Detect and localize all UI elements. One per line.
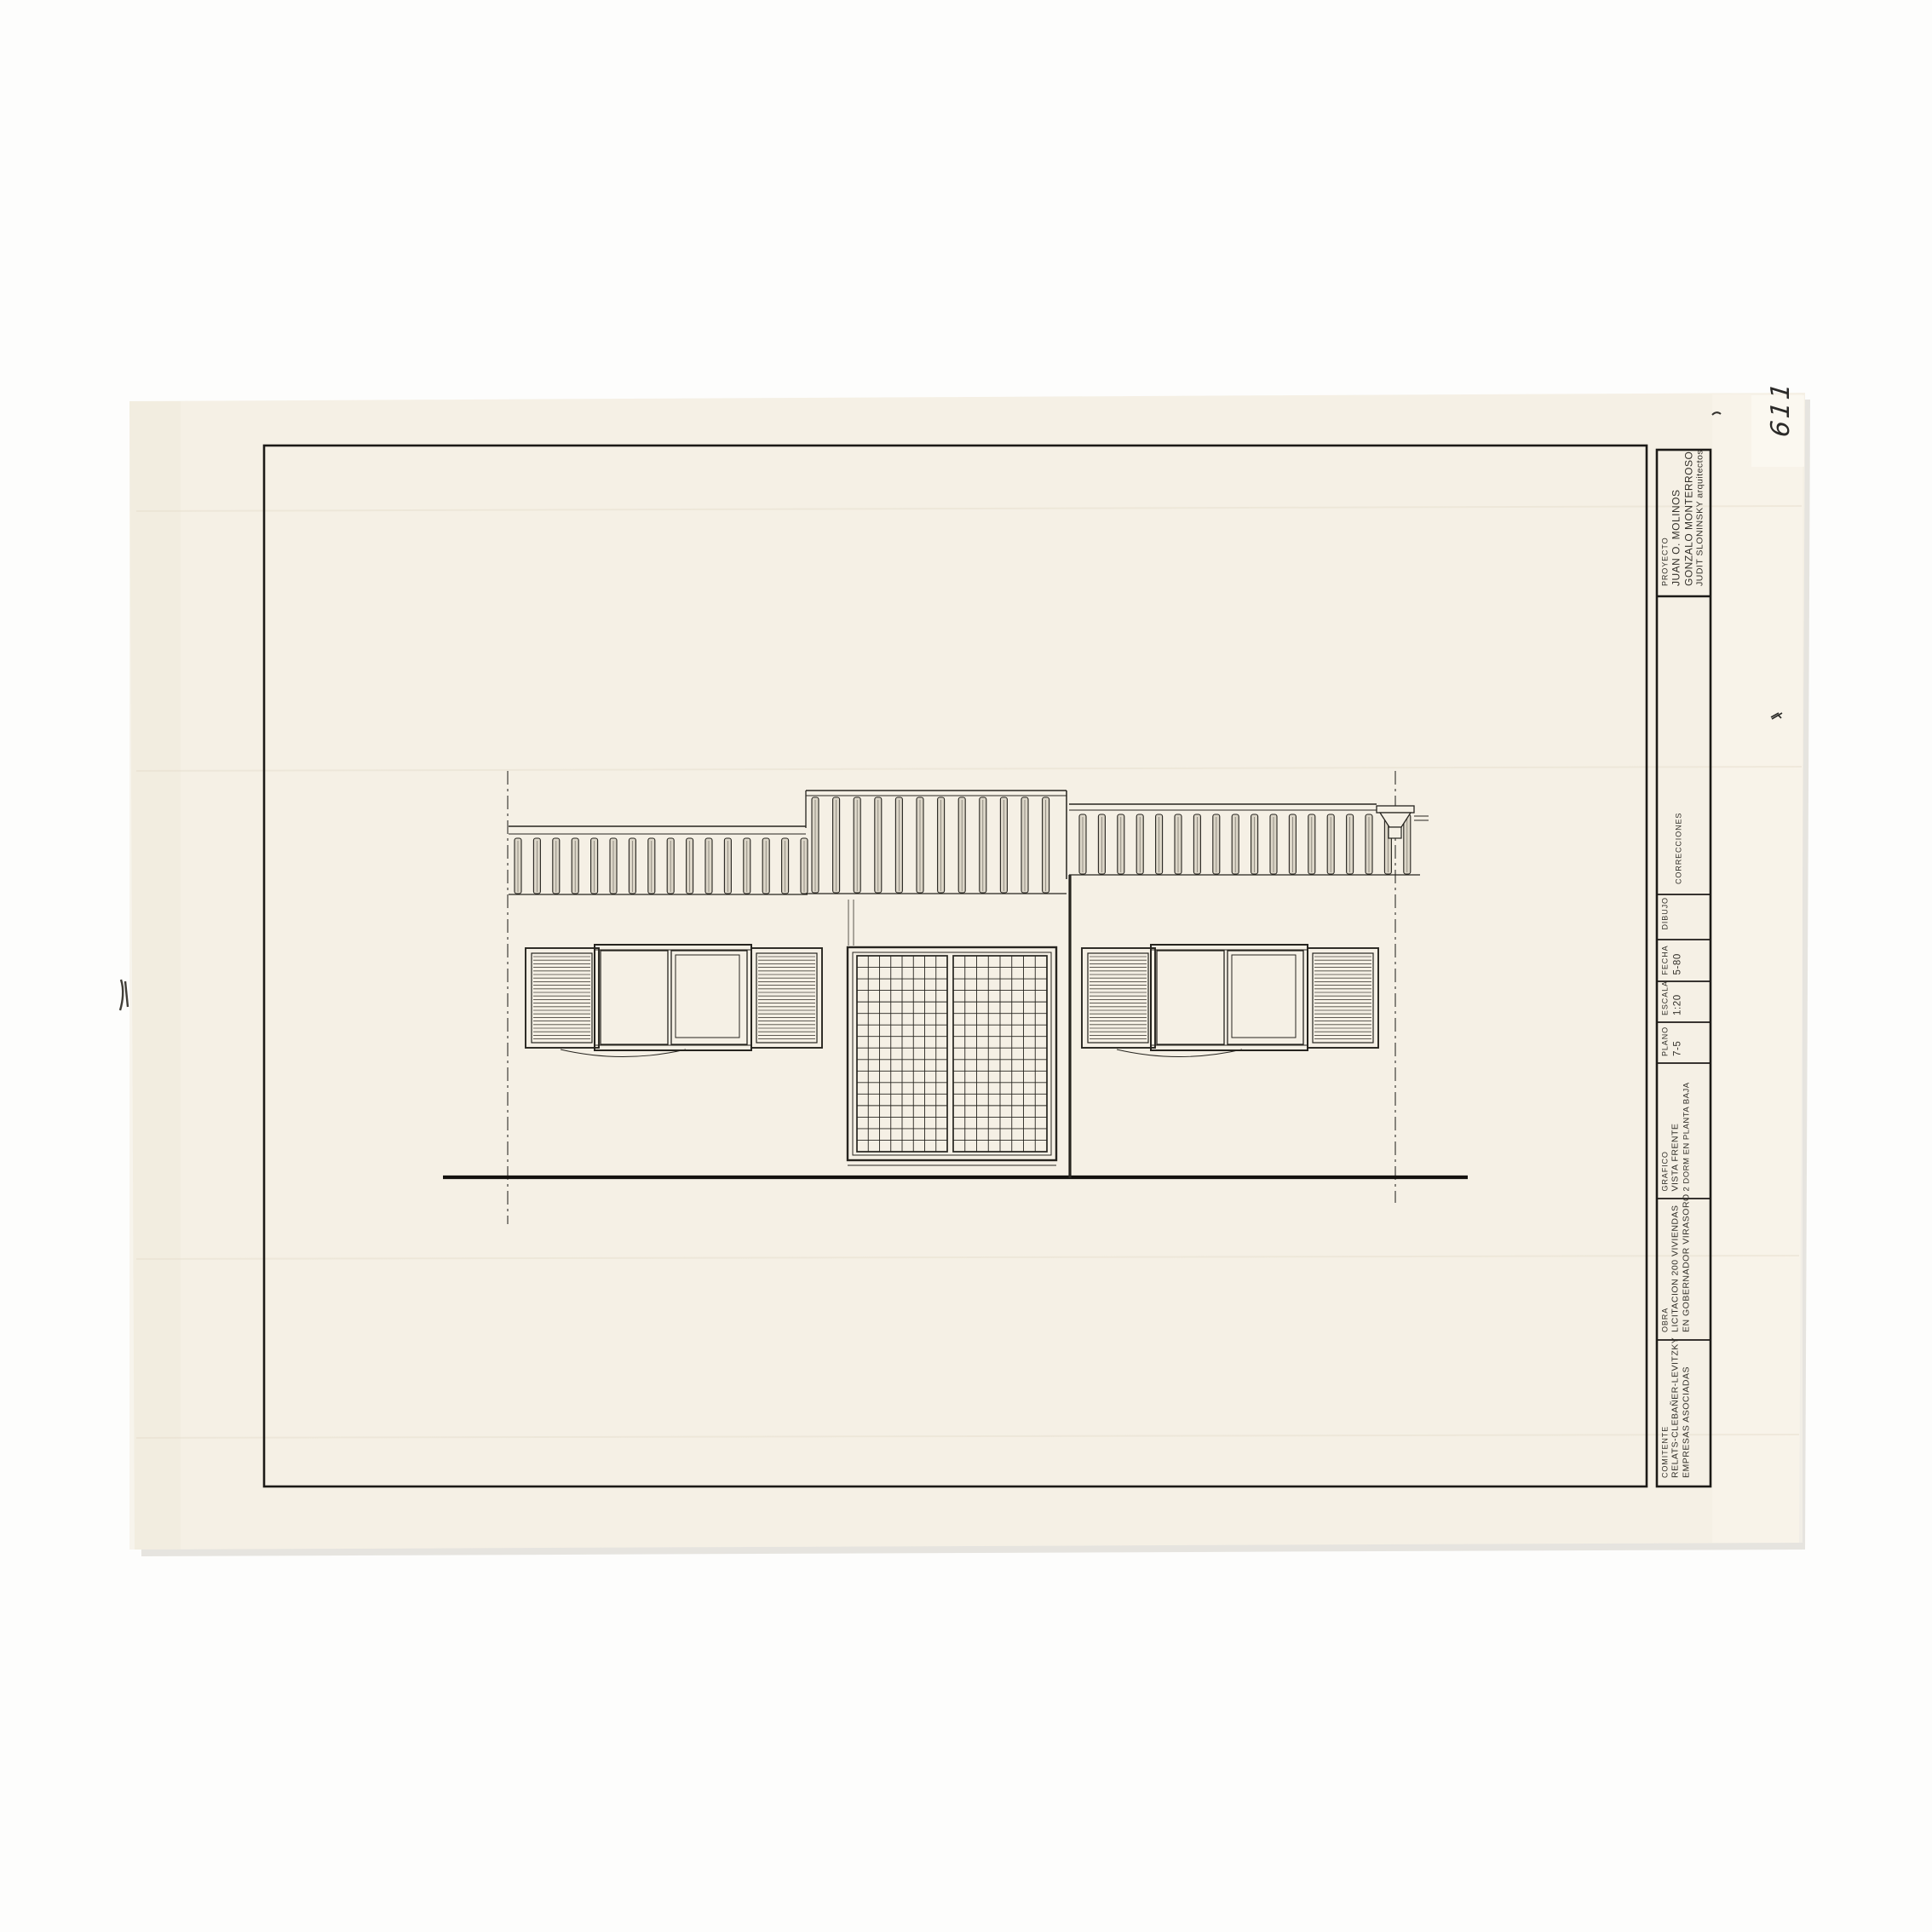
fecha-value: 5-80 [1671,943,1683,975]
titleblock-cell-fecha: FECHA 5-80 [1657,940,1711,981]
titleblock-cell-comitente: COMITENTE RELATS-CLEBAÑER-LEVITZKY EMPRE… [1657,1340,1711,1486]
fecha-label: FECHA [1659,943,1670,975]
comitente-label: COMITENTE [1659,1343,1670,1478]
paper-tone-right [1712,394,1803,1543]
obra-line: LICITACION 200 VIVIENDAS [1670,1202,1681,1332]
titleblock-cell-dibujo: DIBUJO [1657,894,1711,940]
correcciones-label: CORRECCIONES [1673,600,1683,884]
elevation-drawing: 611 [0,0,1932,1932]
escala-value: 1:20 [1671,985,1683,1015]
plano-value: 7-5 [1671,1026,1683,1056]
grafico-line: VISTA FRENTE [1670,1067,1681,1191]
obra-label: OBRA [1659,1202,1670,1332]
proyecto-line: GONZALO MONTERROSO [1682,453,1695,586]
paper-tone-left [129,401,181,1550]
proyecto-line: JUAN O. MOLINOS [1670,453,1682,586]
titleblock-cell-correcciones: CORRECCIONES [1657,596,1711,894]
proyecto-label: PROYECTO [1659,453,1670,586]
grafico-label: GRAFICO [1659,1067,1670,1191]
scanned-drawing-sheet: 611 PROYECTO JUAN O. MOLINOS GONZALO MON… [0,0,1932,1932]
handwritten-sheet-number: 611 [1766,379,1796,439]
hopper-outlet [1389,827,1401,838]
paper-sheet [129,393,1805,1550]
titleblock-cell-grafico: GRAFICO VISTA FRENTE 2 DORM EN PLANTA BA… [1657,1063,1711,1199]
titleblock-cell-proyecto: PROYECTO JUAN O. MOLINOS GONZALO MONTERR… [1657,450,1711,596]
proyecto-line: JUDIT SLONINSKY arquitectos [1694,453,1705,586]
grafico-line: 2 DORM EN PLANTA BAJA [1681,1067,1692,1191]
comitente-line: EMPRESAS ASOCIADAS [1681,1343,1692,1478]
hopper-top [1377,806,1414,813]
titleblock-cell-obra: OBRA LICITACION 200 VIVIENDAS EN GOBERNA… [1657,1199,1711,1340]
escala-label: ESCALA [1659,985,1670,1015]
comitente-line: RELATS-CLEBAÑER-LEVITZKY [1670,1343,1681,1478]
dibujo-label: DIBUJO [1659,898,1670,929]
pencil-scribble-left-edge [120,980,128,1010]
plano-label: PLANO [1659,1026,1670,1056]
obra-line: EN GOBERNADOR VIRASORO [1681,1202,1692,1332]
titleblock-cell-escala: ESCALA 1:20 [1657,981,1711,1022]
titleblock-cell-plano: PLANO 7-5 [1657,1022,1711,1063]
